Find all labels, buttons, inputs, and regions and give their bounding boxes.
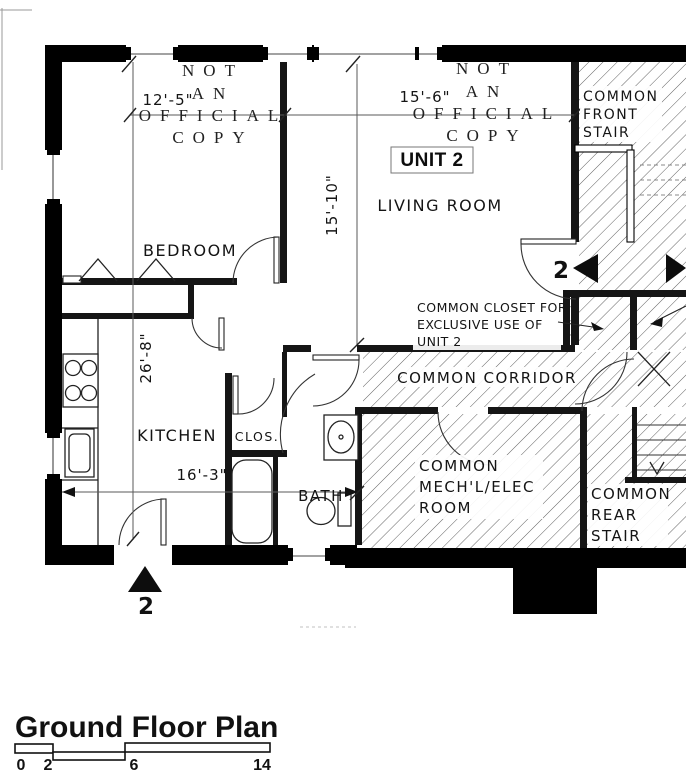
title-block: Ground Floor Plan 0 2 6 14 bbox=[15, 711, 278, 774]
floor-plan-drawing: NOT AN OFFICIAL COPY NOT AN OFFICIAL COP… bbox=[0, 0, 686, 780]
unit-number-bottom: 2 bbox=[138, 594, 154, 620]
scale-bar: 0 2 6 14 bbox=[15, 743, 271, 774]
front-stair-landing-wall bbox=[575, 145, 632, 152]
watermark-an: AN bbox=[192, 84, 235, 103]
entry-door-opening bbox=[114, 545, 172, 565]
unit-corridor-door bbox=[313, 355, 359, 406]
dim-kitchen-width: 16'-3" bbox=[176, 466, 227, 484]
watermark-not: NOT bbox=[182, 61, 244, 80]
living-bottom-wall-a bbox=[283, 345, 311, 352]
corridor-label: COMMON CORRIDOR bbox=[397, 369, 577, 387]
rear-stair-label-1: COMMON bbox=[591, 485, 671, 503]
closet-note-line-3: UNIT 2 bbox=[417, 334, 462, 349]
mech-room-label-3: ROOM bbox=[419, 499, 472, 517]
bedroom-label: BEDROOM bbox=[143, 241, 237, 260]
unit-label: UNIT 2 bbox=[391, 147, 473, 173]
unit-number-front: 2 bbox=[553, 258, 569, 284]
mech-top-wall-a bbox=[360, 407, 438, 414]
hall-door bbox=[192, 318, 224, 350]
scale-label-6: 6 bbox=[130, 757, 139, 774]
mech-room-label-1: COMMON bbox=[419, 457, 499, 475]
top-window-2 bbox=[263, 45, 312, 62]
stove bbox=[63, 354, 98, 407]
living-stair-wall-lower bbox=[571, 295, 579, 345]
watermark-copy: COPY bbox=[446, 126, 527, 145]
closet-note-line-2: EXCLUSIVE USE OF bbox=[417, 317, 543, 332]
watermark-copy: COPY bbox=[172, 128, 253, 147]
mech-right-wall bbox=[580, 407, 587, 548]
left-wall bbox=[45, 62, 62, 565]
bedroom-living-wall bbox=[280, 62, 287, 283]
bottom-pier-block bbox=[513, 566, 597, 614]
dim-unit-depth: 26'-8" bbox=[137, 332, 155, 383]
rear-stair-label-2: REAR bbox=[591, 506, 638, 524]
living-room-label: LIVING ROOM bbox=[377, 196, 502, 215]
closets-divider-wall bbox=[630, 297, 637, 350]
hall-wall-v bbox=[188, 285, 194, 316]
closet-note-line-1: COMMON CLOSET FOR bbox=[417, 300, 567, 315]
bath-label: BATH bbox=[298, 487, 344, 505]
closet-label: CLOS. bbox=[235, 429, 280, 444]
common-closets-hatch bbox=[563, 297, 686, 350]
dim-living-depth: 15'-10" bbox=[323, 174, 341, 236]
watermark-not: NOT bbox=[456, 59, 518, 78]
kitchen-fixtures bbox=[62, 319, 98, 545]
bedroom-door bbox=[233, 237, 279, 283]
closets-top-wall bbox=[563, 290, 686, 297]
scale-label-0: 0 bbox=[17, 757, 26, 774]
floor-plan-page: NOT AN OFFICIAL COPY NOT AN OFFICIAL COP… bbox=[0, 0, 686, 780]
front-stair-label-3: STAIR bbox=[583, 125, 630, 141]
dim-bedroom-width: 12'-5" bbox=[142, 91, 193, 109]
top-window-3 bbox=[314, 45, 442, 62]
plan-title: Ground Floor Plan bbox=[15, 711, 278, 744]
lavatory bbox=[324, 415, 358, 460]
scale-label-2: 2 bbox=[44, 757, 53, 774]
kitchen-sink bbox=[65, 429, 94, 477]
entry-door bbox=[119, 499, 166, 545]
dim-arrow-left bbox=[62, 487, 75, 497]
front-stair-label-2: FRONT bbox=[583, 107, 638, 123]
front-stair-rail bbox=[627, 150, 634, 242]
rear-stair-label-3: STAIR bbox=[591, 527, 641, 545]
dim-living-width: 15'-6" bbox=[399, 88, 450, 106]
mech-top-wall-b bbox=[488, 407, 580, 414]
scale-label-14: 14 bbox=[253, 757, 271, 774]
front-stair-label-1: COMMON bbox=[583, 89, 658, 105]
rear-stair-rail bbox=[632, 407, 637, 479]
closet-door bbox=[233, 376, 274, 414]
left-window-2 bbox=[45, 433, 62, 479]
bottom-entry-triangle bbox=[128, 566, 162, 592]
left-window-1 bbox=[45, 150, 62, 204]
closet-bath-left-wall bbox=[225, 373, 232, 545]
bedroom-closet-wall bbox=[62, 278, 237, 285]
rear-stair-bottom-wall bbox=[625, 477, 686, 483]
bottom-window bbox=[288, 545, 330, 565]
mech-room-label-2: MECH'L/ELEC bbox=[419, 478, 535, 496]
bottom-wall-right bbox=[345, 548, 686, 568]
watermark-official: OFFICIAL bbox=[413, 104, 562, 123]
kitchen-bedroom-wall bbox=[62, 313, 194, 319]
kitchen-label: KITCHEN bbox=[137, 426, 217, 445]
watermark-an: AN bbox=[466, 82, 509, 101]
tub-partition bbox=[273, 457, 278, 545]
closet-bottom-wall bbox=[225, 450, 287, 457]
unit-label-text: UNIT 2 bbox=[400, 150, 463, 171]
bathtub bbox=[232, 460, 272, 543]
